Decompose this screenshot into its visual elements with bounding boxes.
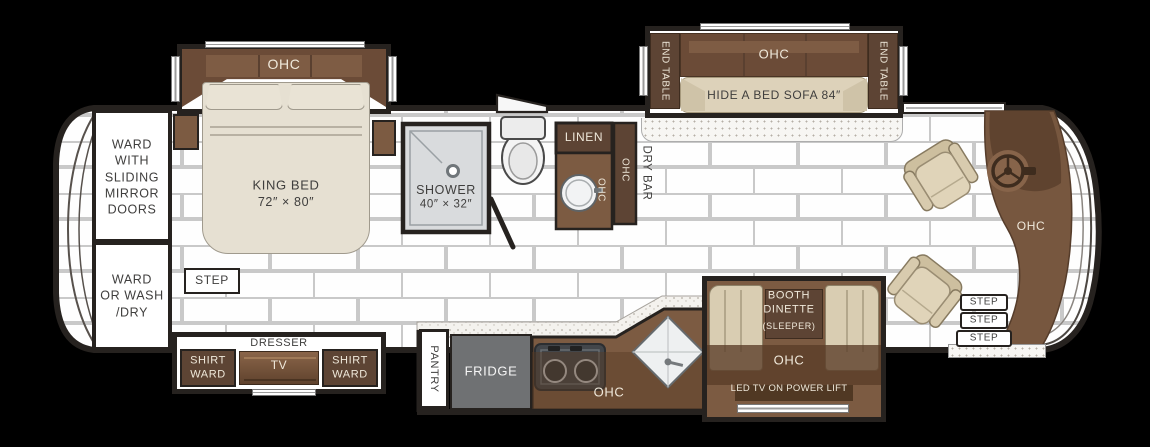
label-end-table-left: END TABLE (659, 41, 672, 101)
label-shower-size: 40″ × 32″ (420, 198, 472, 213)
pillow (205, 84, 283, 110)
label-shirt-ward-right: SHIRT WARD (332, 354, 368, 383)
label-booth-dinette: BOOTH DINETTE (763, 289, 814, 318)
label-fridge: FRIDGE (465, 364, 518, 381)
label-dinette-ohc: OHC (774, 353, 805, 370)
sofa-slide-right-window (899, 46, 908, 96)
dresser-slide-window (252, 389, 316, 396)
bedroom-slide-left-window (171, 56, 180, 102)
label-entry-step-2: STEP (970, 314, 999, 327)
label-dash-ohc: OHC (1017, 219, 1045, 235)
bed-blanket-seam (210, 126, 362, 136)
label-bedroom-step: STEP (195, 273, 229, 289)
sofa-slide-left-window (639, 46, 648, 96)
nightstand (372, 120, 396, 156)
label-drybar-ohc: OHC (619, 158, 632, 182)
pillow (287, 84, 365, 110)
roof-vent (497, 95, 547, 112)
label-hide-a-bed: HIDE A BED SOFA 84″ (707, 88, 841, 104)
label-ward-mirror: WARD WITH SLIDING MIRROR DOORS (105, 136, 159, 217)
shower-pan (403, 124, 489, 232)
label-led-tv: LED TV ON POWER LIFT (731, 383, 848, 395)
label-galley-ohc: OHC (594, 385, 625, 402)
nightstand (173, 114, 199, 150)
sofa-slide-top-window (700, 23, 850, 30)
label-entry-step-1: STEP (970, 296, 999, 309)
label-shirt-ward-left: SHIRT WARD (190, 354, 226, 383)
label-end-table-right: END TABLE (877, 41, 890, 101)
label-dresser: DRESSER (250, 336, 307, 350)
label-vanity-ohc: OHC (595, 178, 608, 202)
label-entry-step-3: STEP (970, 332, 999, 345)
bedroom-slide-right-window (388, 56, 397, 102)
label-tv: TV (271, 358, 288, 374)
label-pantry: PANTRY (427, 345, 441, 392)
label-sofa-ohc: OHC (759, 47, 790, 64)
label-bedroom-ohc: OHC (268, 55, 301, 73)
sofa-slide (645, 26, 903, 118)
label-king-bed: KING BED (253, 178, 320, 195)
sofa-floor-mat (641, 118, 903, 142)
rv-floor-plan: WARD WITH SLIDING MIRROR DOORS WARD OR W… (0, 0, 1150, 447)
bedroom-slide-top-window (205, 41, 365, 48)
label-king-bed-size: 72″ × 80″ (258, 194, 314, 210)
shower-drain (448, 166, 459, 177)
toilet (501, 117, 545, 184)
label-ward-washdry: WARD OR WASH /DRY (100, 272, 163, 321)
dinette-slide-window (737, 404, 849, 413)
label-booth-sleeper: (SLEEPER) (763, 321, 816, 333)
label-linen: LINEN (565, 130, 603, 146)
label-dry-bar: DRY BAR (639, 146, 654, 201)
label-shower: SHOWER (416, 182, 476, 198)
